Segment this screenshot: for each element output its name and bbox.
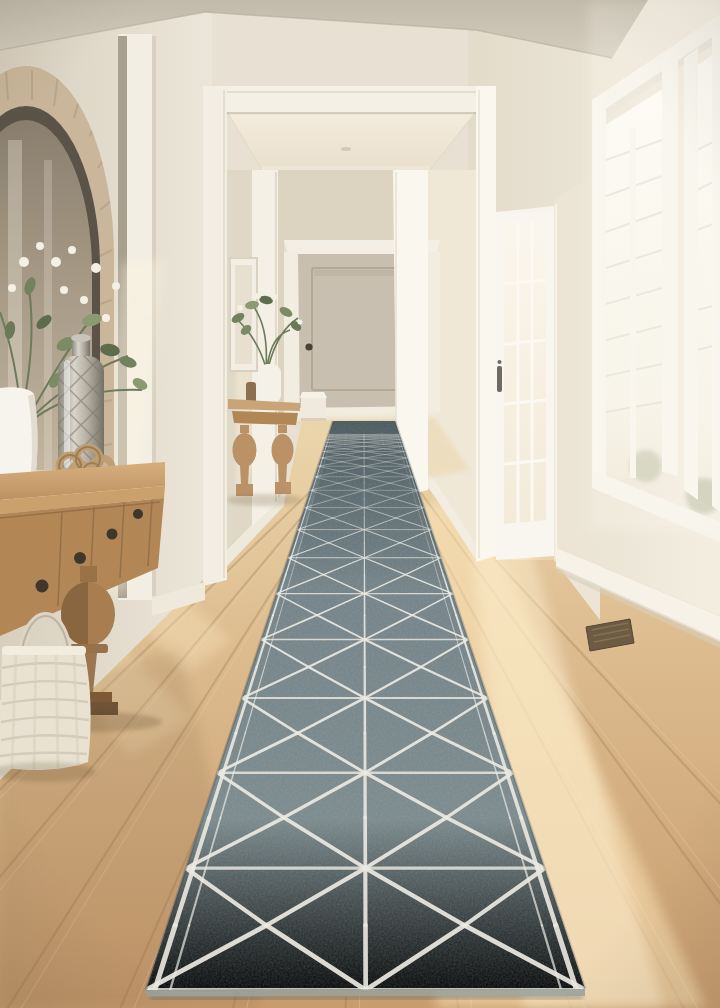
- vignette: [0, 0, 720, 1008]
- hallway-scene: [0, 0, 720, 1008]
- hallway-photo: [0, 0, 720, 1008]
